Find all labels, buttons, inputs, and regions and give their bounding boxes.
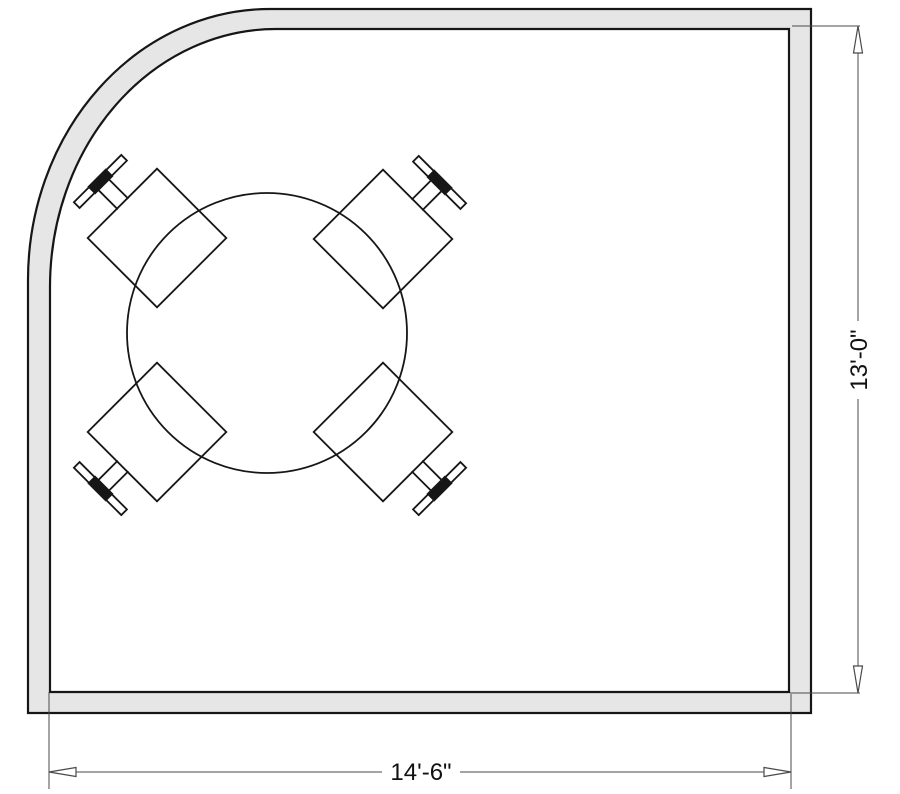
width-dimension-label: 14'-6" bbox=[390, 759, 451, 786]
wall-inner-outline bbox=[50, 29, 789, 692]
height-dimension-label: 13'-0" bbox=[846, 329, 873, 390]
floor-plan-drawing: 14'-6" 13'-0" bbox=[0, 0, 900, 794]
floor-plan-canvas: 14'-6" 13'-0" bbox=[0, 0, 900, 794]
walls bbox=[28, 9, 811, 713]
arrowhead-up bbox=[854, 26, 863, 53]
arrowhead-right bbox=[764, 768, 791, 777]
arrowhead-left bbox=[49, 768, 76, 777]
arrowhead-down bbox=[854, 666, 863, 693]
